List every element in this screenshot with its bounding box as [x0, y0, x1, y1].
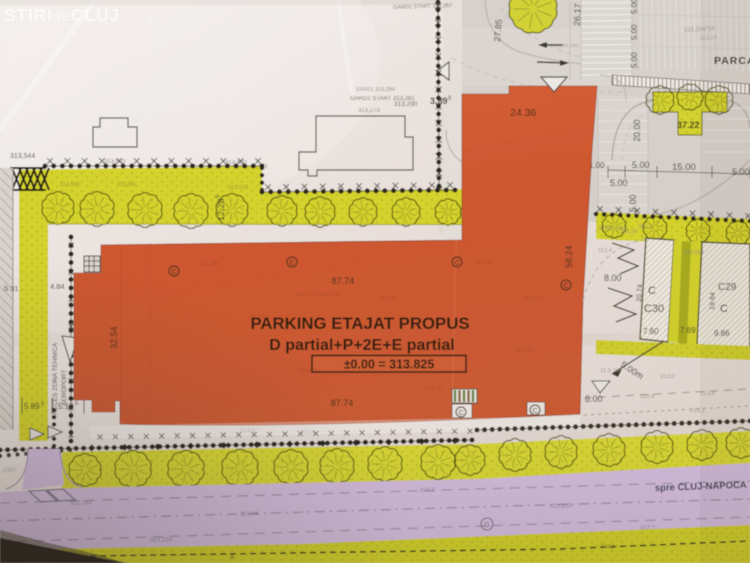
svg-text:o: o [148, 14, 153, 24]
svg-text:STIRIdeCLUJ: STIRIdeCLUJ [4, 5, 120, 25]
